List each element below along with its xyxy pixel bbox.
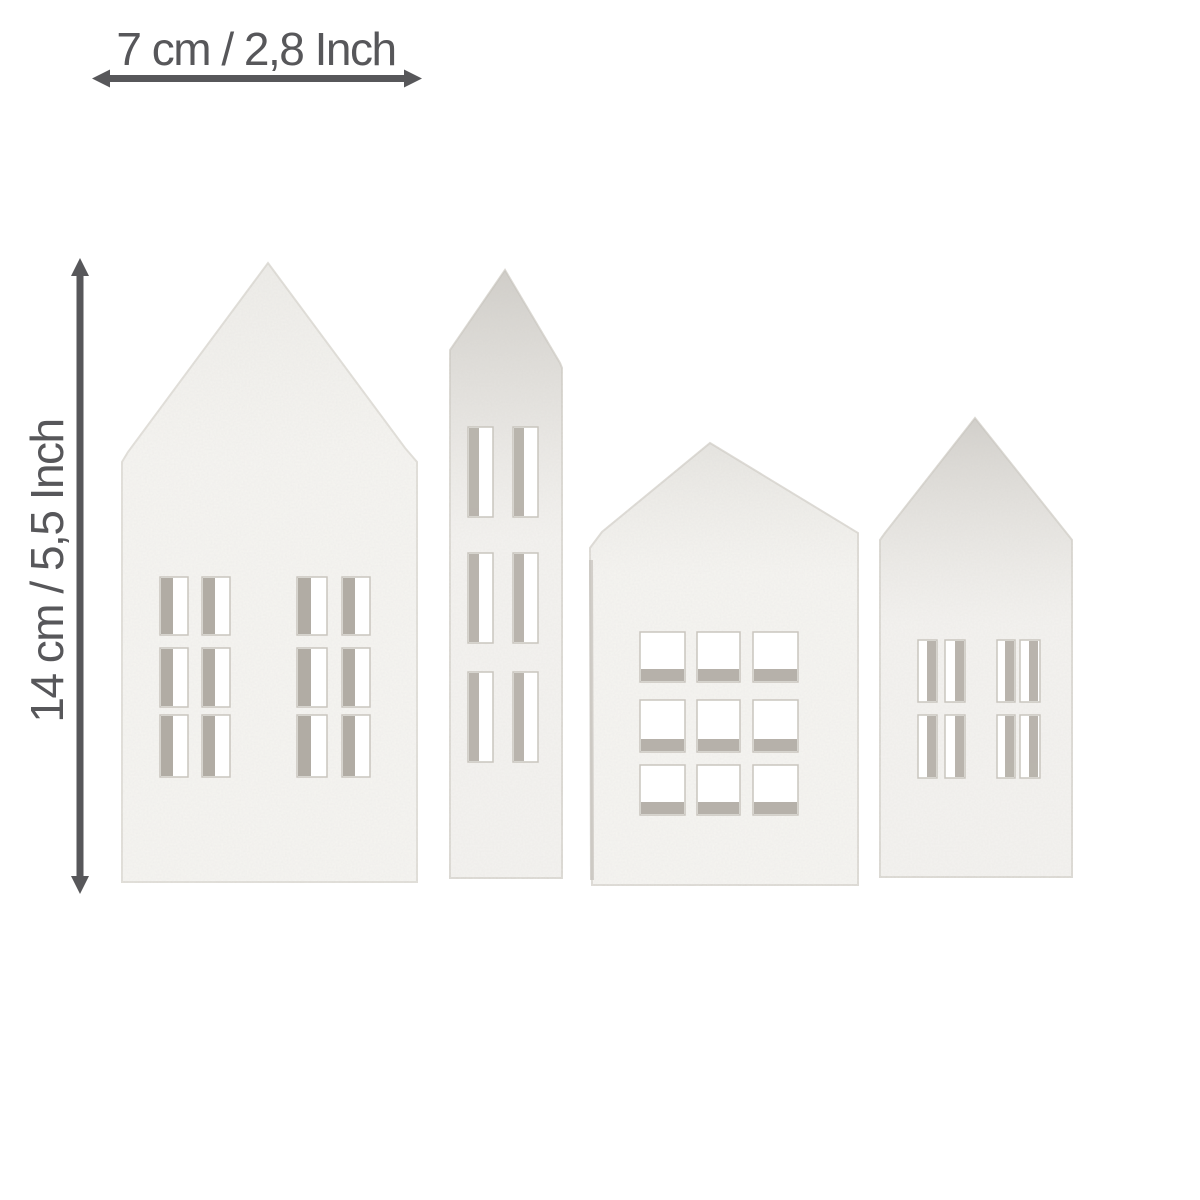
large-house-roof	[122, 263, 417, 462]
tower-house-roof	[450, 270, 562, 540]
small-gable-house	[880, 418, 1072, 877]
houses-photo	[0, 0, 1200, 1200]
product-photo: 7 cm / 2,8 Inch 14 cm / 5,5 Inch	[0, 0, 1200, 1200]
small-house-roof	[880, 418, 1072, 625]
wide-house-window	[640, 632, 798, 815]
large-gable-house	[122, 263, 417, 882]
wide-gable-house	[590, 443, 858, 885]
wide-house-roof	[590, 443, 858, 575]
tall-tower-house	[450, 270, 562, 878]
wide-house-left-edge-shade	[591, 560, 592, 880]
